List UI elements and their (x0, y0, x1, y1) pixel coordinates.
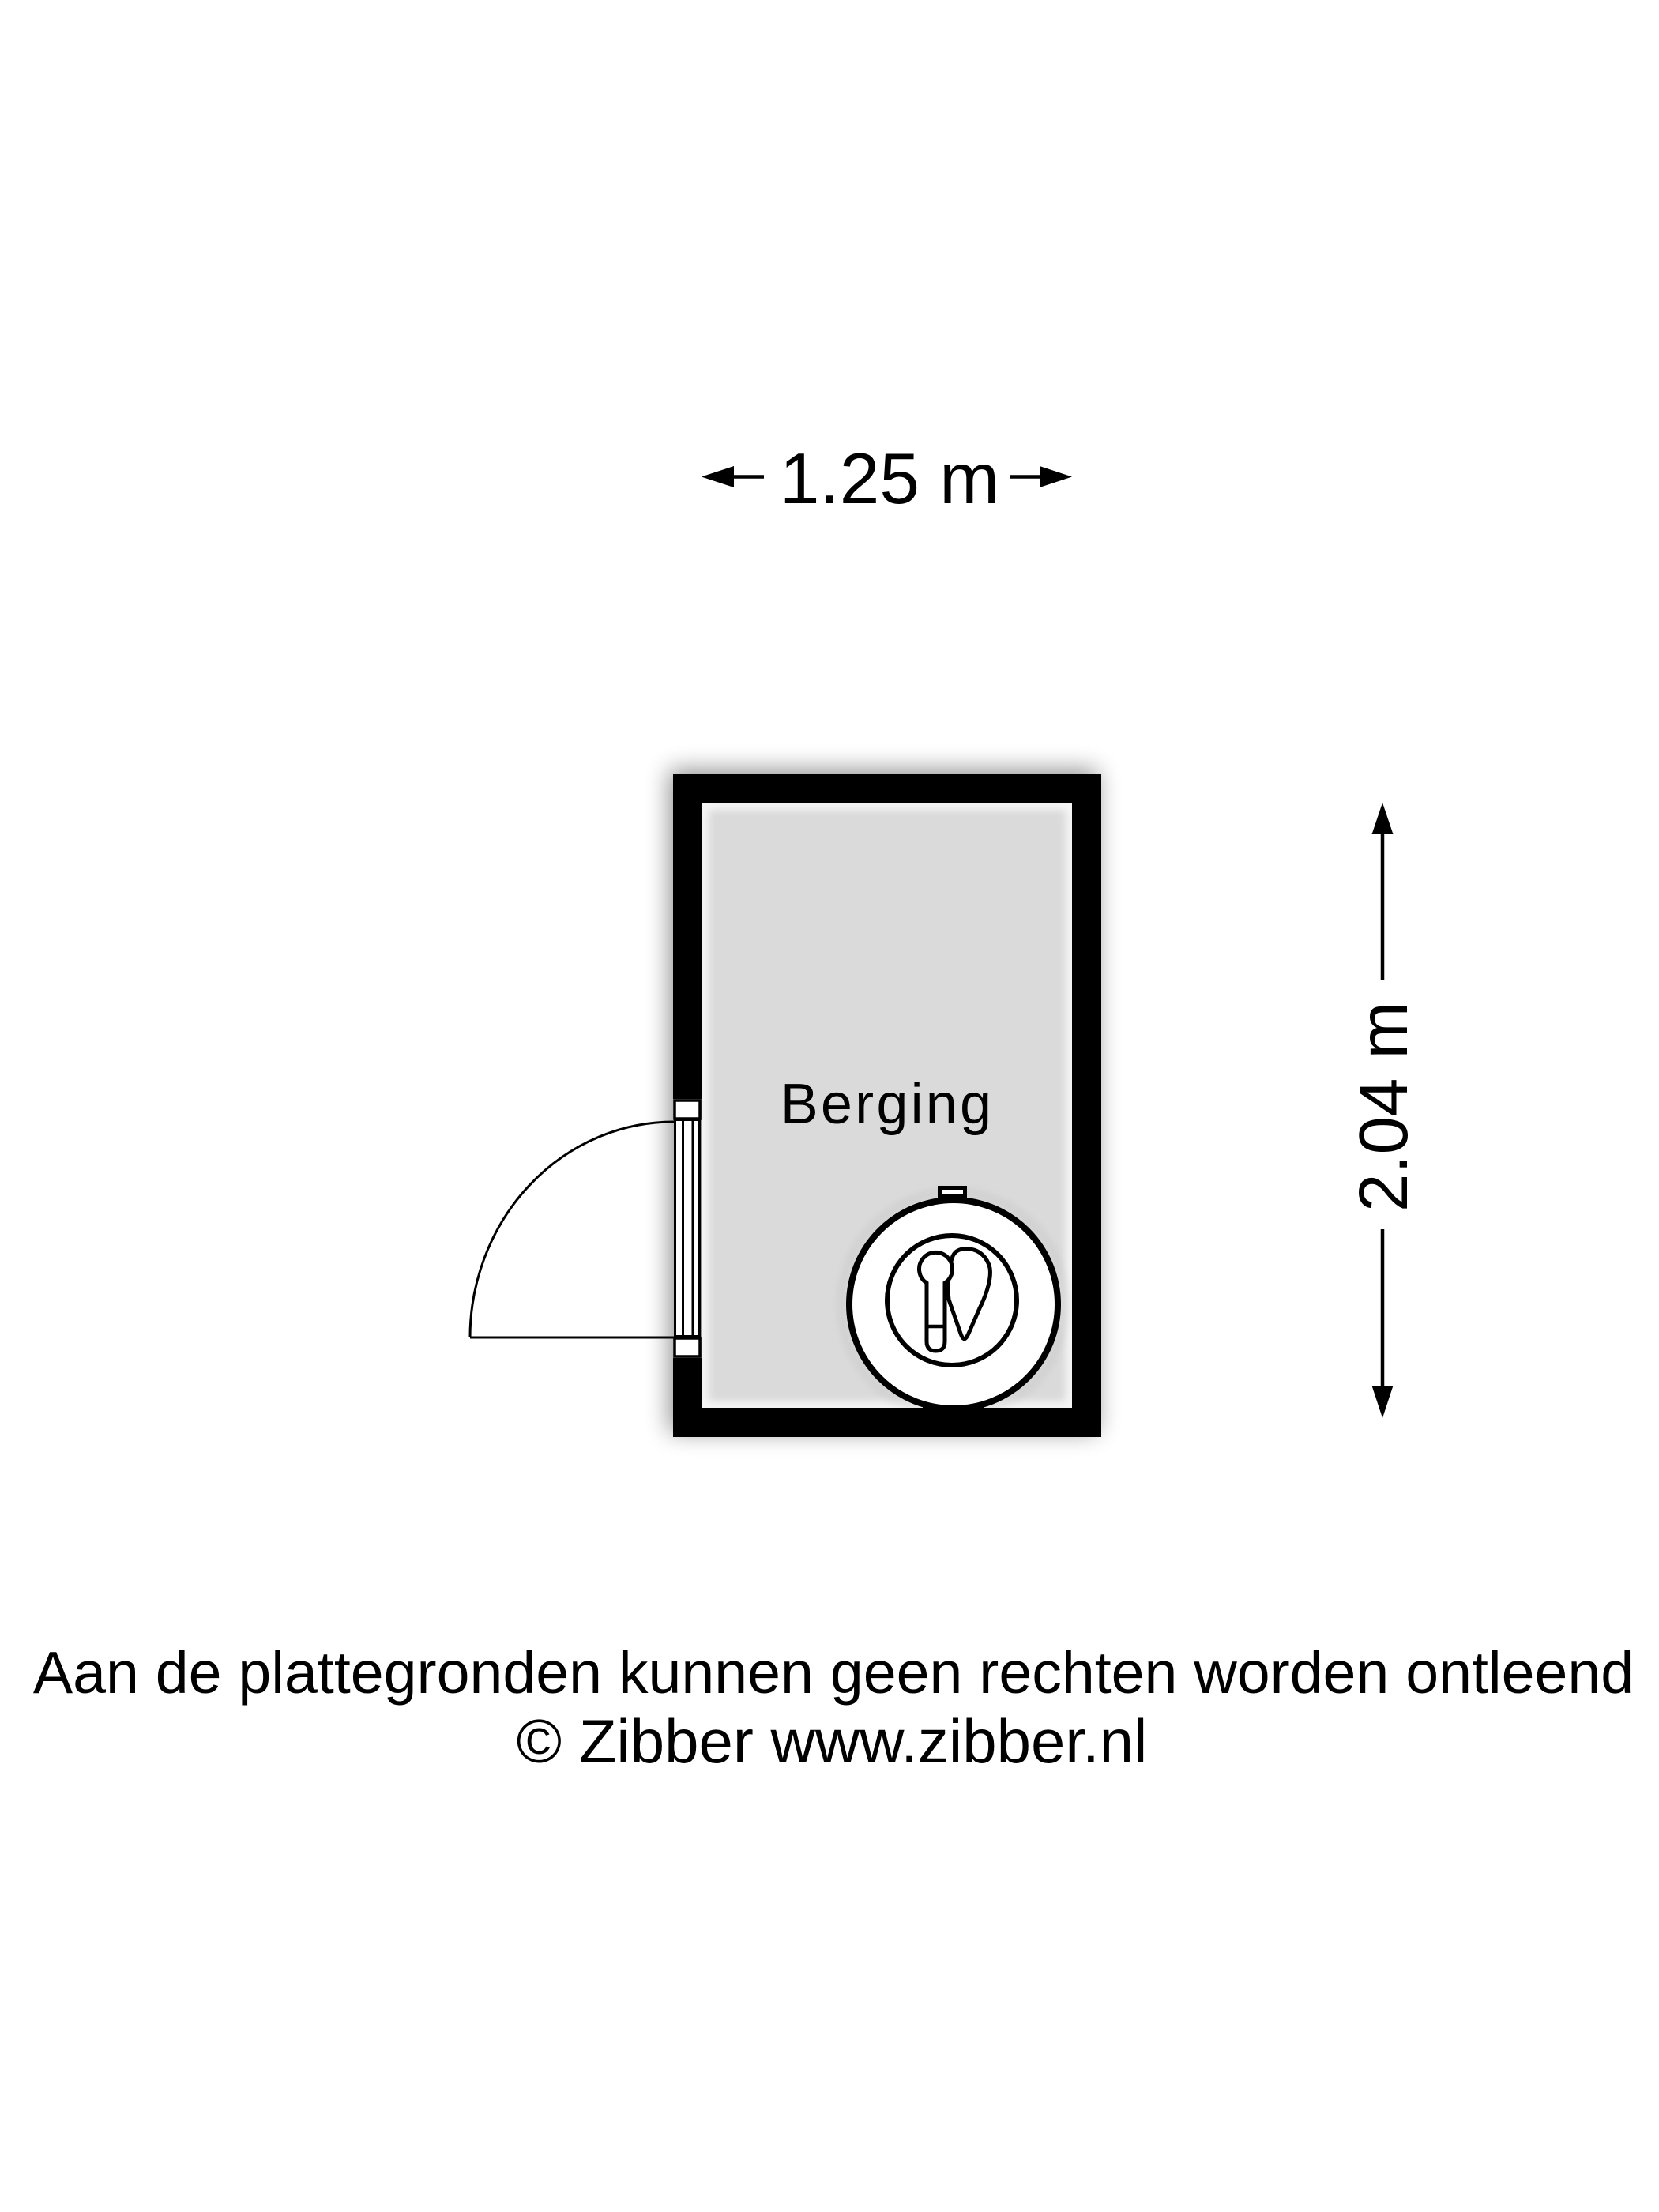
svg-text:Berging: Berging (781, 1073, 995, 1136)
svg-text:Aan de plattegronden kunnen ge: Aan de plattegronden kunnen geen rechten… (33, 1639, 1634, 1706)
svg-text:1.25 m: 1.25 m (780, 439, 999, 519)
svg-text:© Zibber www.zibber.nl: © Zibber www.zibber.nl (517, 1706, 1148, 1776)
svg-text:2.04 m: 2.04 m (1345, 1002, 1422, 1212)
